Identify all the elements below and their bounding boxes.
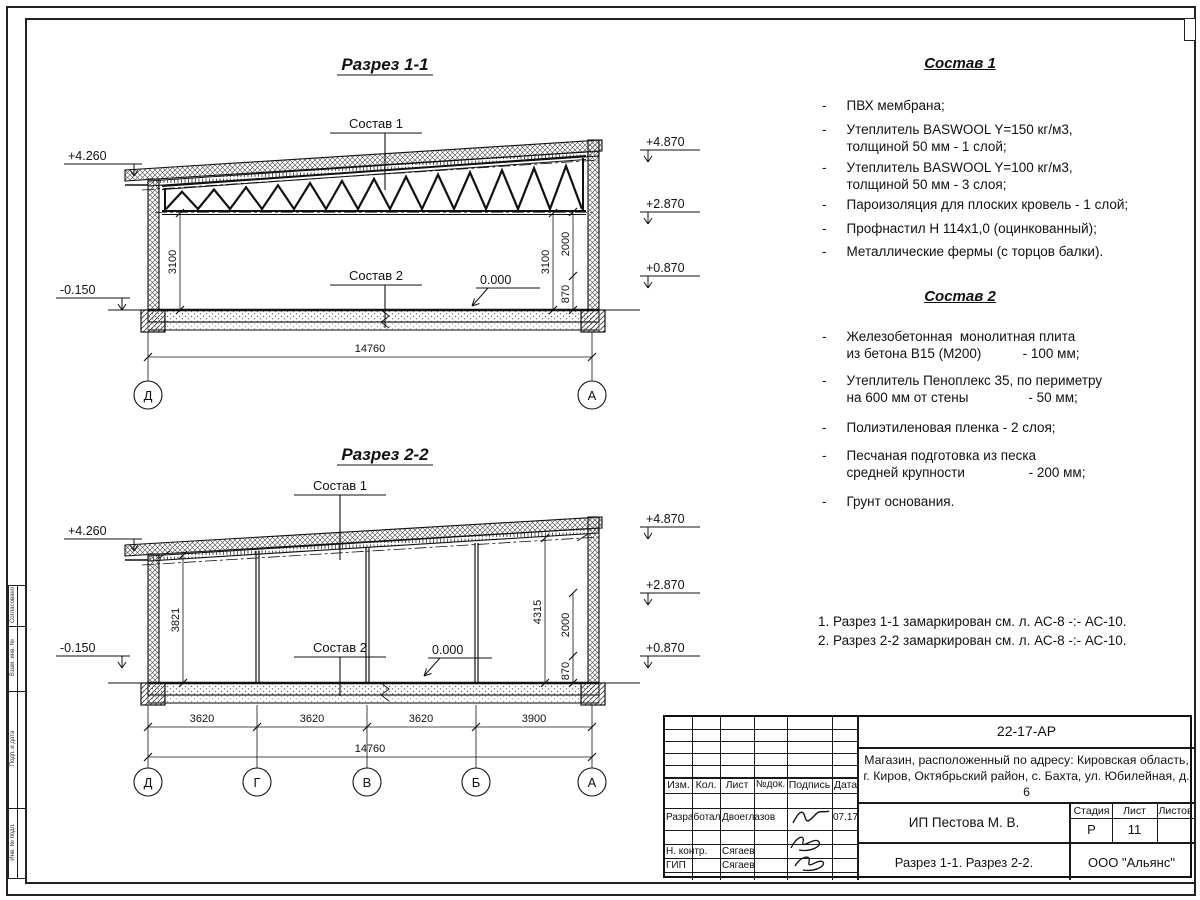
svg-text:+4.870: +4.870 xyxy=(646,135,685,149)
bullet: - xyxy=(822,196,827,213)
vertical-dims: 3100 3100 2000 870 xyxy=(167,208,577,314)
side-strip-label: Согласовано xyxy=(10,585,17,625)
col-header: Подпись xyxy=(787,779,832,791)
section-1-1-drawing: Разрез 1-1 xyxy=(56,55,700,409)
side-strip-label: Инв. № подл. xyxy=(10,807,17,877)
corner-box xyxy=(1184,18,1196,41)
grid-bubble-label: А xyxy=(588,775,597,790)
svg-text:+0.870: +0.870 xyxy=(646,641,685,655)
stage-header: Стадия xyxy=(1071,805,1112,817)
list-item: -Грунт основания. xyxy=(822,493,1187,510)
svg-text:+0.870: +0.870 xyxy=(646,261,685,275)
drawing-sheet: Согласовано Взам. инв. № Подп. и дата Ин… xyxy=(0,0,1200,900)
list-item: -ПВХ мембрана; xyxy=(822,97,1187,114)
row-date: 07.17 xyxy=(832,812,859,823)
section-2-2-title: Разрез 2-2 xyxy=(341,445,429,464)
list-item: -Утеплитель BASWOOL Y=150 кг/м3, толщино… xyxy=(822,121,1187,155)
section-1-1-title: Разрез 1-1 xyxy=(341,55,428,74)
sostav2-heading: Состав 2 xyxy=(860,288,1060,305)
svg-text:14760: 14760 xyxy=(355,343,386,355)
vertical-dims: 3821 4315 2000 870 xyxy=(170,534,577,687)
bullet: - xyxy=(822,419,827,436)
company-name: ООО "Альянс" xyxy=(1069,855,1194,870)
columns xyxy=(256,543,478,683)
col-header: Лист xyxy=(720,779,754,791)
svg-text:3620: 3620 xyxy=(190,713,214,725)
note-line: 1. Разрез 1-1 замаркирован см. л. АС-8 -… xyxy=(818,612,1127,631)
doc-number: 22-17-АР xyxy=(859,723,1194,739)
side-strip-label: Взам. инв. № xyxy=(10,625,17,690)
bullet: - xyxy=(822,328,827,362)
grid-bubble-label: В xyxy=(363,775,372,790)
svg-text:Состав 1: Состав 1 xyxy=(349,116,403,131)
svg-text:Состав 2: Состав 2 xyxy=(313,640,367,655)
svg-text:3821: 3821 xyxy=(170,608,182,632)
svg-text:3620: 3620 xyxy=(300,713,324,725)
signature xyxy=(789,805,831,829)
grid-bubble-label: Б xyxy=(472,775,481,790)
svg-text:+4.260: +4.260 xyxy=(68,149,107,163)
svg-text:2000: 2000 xyxy=(560,613,572,637)
level-zero: 0.000 xyxy=(472,273,540,306)
svg-text:3100: 3100 xyxy=(540,250,552,274)
col-header: Кол. xyxy=(692,779,720,791)
bullet: - xyxy=(822,243,827,260)
bullet: - xyxy=(822,493,827,510)
side-strip-label: Подп. и дата xyxy=(10,690,17,807)
row-role: ГИП xyxy=(666,860,720,871)
row-name: Сягаев xyxy=(722,860,786,871)
row-name: Двоеглазов xyxy=(722,812,786,823)
svg-text:14760: 14760 xyxy=(355,743,386,755)
bullet: - xyxy=(822,372,827,406)
svg-text:4315: 4315 xyxy=(532,600,544,624)
list-item: -Металлические фермы (с торцов балки). xyxy=(822,243,1187,260)
svg-text:3900: 3900 xyxy=(522,713,546,725)
svg-text:+4.870: +4.870 xyxy=(646,512,685,526)
svg-text:2000: 2000 xyxy=(560,232,572,256)
level-zero: 0.000 xyxy=(424,643,492,676)
sostav1-heading: Состав 1 xyxy=(860,55,1060,72)
col-header: Дата xyxy=(832,779,859,791)
signature xyxy=(785,832,833,876)
sheets-header: Листов xyxy=(1157,805,1194,817)
row-name: Сягаев xyxy=(722,846,786,857)
svg-text:870: 870 xyxy=(560,285,572,303)
note-line: 2. Разрез 2-2 замаркирован см. л. АС-8 -… xyxy=(818,631,1127,650)
svg-text:0.000: 0.000 xyxy=(432,643,463,657)
svg-text:Состав 2: Состав 2 xyxy=(349,268,403,283)
list-item: -Пароизоляция для плоских кровель - 1 сл… xyxy=(822,196,1187,213)
grid-bubble-label: А xyxy=(588,388,597,403)
list-item: -Утеплитель Пеноплекс 35, по периметру н… xyxy=(822,372,1187,406)
title-block: Изм. Кол. Лист №док. Подпись Дата Разраб… xyxy=(663,715,1192,878)
notes: 1. Разрез 1-1 замаркирован см. л. АС-8 -… xyxy=(818,612,1127,650)
svg-text:-0.150: -0.150 xyxy=(60,641,95,655)
svg-text:-0.150: -0.150 xyxy=(60,283,95,297)
svg-text:+4.260: +4.260 xyxy=(68,524,107,538)
bullet: - xyxy=(822,220,827,237)
svg-text:+2.870: +2.870 xyxy=(646,197,685,211)
stage-value: Р xyxy=(1071,822,1112,837)
list-item: -Песчаная подготовка из песка средней кр… xyxy=(822,447,1187,481)
list-item: -Утеплитель BASWOOL Y=100 кг/м3, толщино… xyxy=(822,159,1187,193)
row-role: Н. контр. xyxy=(666,846,720,857)
grid-bubble-label: Д xyxy=(144,388,153,403)
client-name: ИП Пестова М. В. xyxy=(859,815,1069,830)
overall-dim: 14760 Д А xyxy=(134,332,606,409)
bullet: - xyxy=(822,159,827,193)
svg-text:0.000: 0.000 xyxy=(480,273,511,287)
sheet-header: Лист xyxy=(1112,805,1157,817)
grid-bubble-label: Г xyxy=(253,775,260,790)
bullet: - xyxy=(822,121,827,155)
svg-text:3620: 3620 xyxy=(409,713,433,725)
grid-bubble-label: Д xyxy=(144,775,153,790)
svg-text:3100: 3100 xyxy=(167,250,179,274)
section-2-2-drawing: Разрез 2-2 xyxy=(56,445,700,796)
col-header: №док. xyxy=(754,779,787,790)
bullet: - xyxy=(822,447,827,481)
row-role: Разработал xyxy=(666,812,720,823)
project-address: Магазин, расположенный по адресу: Кировс… xyxy=(862,752,1191,800)
svg-text:870: 870 xyxy=(560,662,572,680)
svg-text:+2.870: +2.870 xyxy=(646,578,685,592)
sections-drawing: Разрез 1-1 xyxy=(40,40,700,810)
list-item: -Железобетонная монолитная плита из бето… xyxy=(822,328,1187,362)
col-header: Изм. xyxy=(665,779,692,791)
list-item: -Профнастил Н 114х1,0 (оцинкованный); xyxy=(822,220,1187,237)
list-item: -Полиэтиленовая пленка - 2 слоя; xyxy=(822,419,1187,436)
sheet-value: 11 xyxy=(1112,822,1157,837)
svg-text:Состав 1: Состав 1 xyxy=(313,478,367,493)
bullet: - xyxy=(822,97,827,114)
bay-dims: 3620 3620 3620 3900 14760 Д Г В Б А xyxy=(134,705,606,796)
sheet-title: Разрез 1-1. Разрез 2-2. xyxy=(859,855,1069,870)
